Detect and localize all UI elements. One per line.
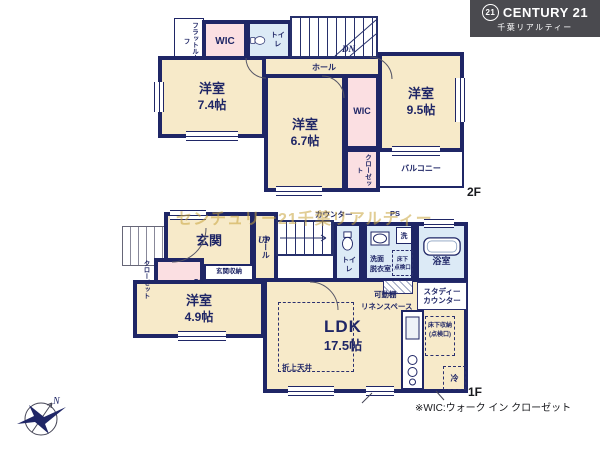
window (366, 386, 394, 396)
toilet-icon (250, 35, 266, 46)
f2-wic-mid: WIC (344, 74, 380, 150)
stairs-up-label: UP (258, 235, 270, 245)
floor-1-label: 1F (468, 385, 482, 399)
toilet-label: トイレ (339, 256, 359, 274)
floor-plan-page: 21 CENTURY 21 千葉リアルティー フラットルーフ WIC トイレ D… (0, 0, 600, 450)
f1-toilet: トイレ (333, 222, 363, 282)
f2-bedroom-6-7: 洋室 6.7帖 (264, 74, 346, 192)
hatch-label-2: 点検口 (394, 263, 411, 271)
entrance-label: 玄関 (196, 233, 222, 250)
washroom-label-1: 洗面 (370, 255, 384, 264)
window (186, 131, 238, 141)
linen-space-label: リネンスペース (361, 301, 412, 312)
study-counter: スタディー カウンター (417, 282, 467, 310)
century21-seal-icon: 21 (482, 4, 499, 21)
entrance-storage-label: 玄関収納 (216, 268, 242, 276)
stairs-down-label: DN (342, 44, 355, 54)
room-size: 4.9帖 (185, 310, 214, 326)
window (178, 331, 226, 341)
window (455, 78, 465, 122)
f1-bedroom-4-9: 洋室 4.9帖 (133, 280, 265, 338)
window (276, 186, 322, 196)
study-counter-label-2: カウンター (423, 296, 461, 305)
compass-north-icon: N (14, 392, 68, 446)
underfloor-hatch: 床下 点検口 (392, 250, 413, 276)
storage-label-1: 床下収納 (428, 320, 452, 329)
room-name: 洋室 (408, 86, 434, 103)
room-size: 7.4帖 (198, 98, 227, 114)
logo-brand-row: 21 CENTURY 21 (482, 4, 588, 21)
f2-closet: クローゼット (344, 148, 380, 192)
washroom-label-2: 脱衣室 (370, 265, 391, 274)
storage-label-2: (点検口) (429, 329, 451, 338)
window (154, 82, 164, 112)
window (288, 386, 334, 396)
wic-footnote: ※WIC:ウォーク イン クローゼット (415, 399, 571, 414)
kitchen-unit (401, 310, 424, 390)
company-name: 千葉リアルティー (497, 22, 572, 33)
bath-label: 浴室 (432, 256, 450, 268)
coffered-ceiling-label: 折上天井 (282, 362, 312, 373)
window (392, 146, 440, 156)
floor-2-label: 2F (467, 185, 481, 199)
f2-stairs (290, 16, 378, 58)
north-label: N (52, 396, 61, 407)
kitchen-sink-stove-icon (403, 312, 422, 388)
toilet-label: トイレ (268, 31, 288, 49)
fridge-label: 冷 (451, 373, 459, 384)
f1-bathroom: 浴室 (415, 222, 468, 282)
brand-name: CENTURY 21 (503, 5, 588, 20)
toilet-icon (341, 231, 354, 251)
underfloor-storage: 床下収納 (点検口) (425, 316, 455, 356)
century21-logo: 21 CENTURY 21 千葉リアルティー (470, 0, 600, 37)
washer-label: 洗 (401, 231, 408, 241)
entrance-storage: 玄関収納 (204, 264, 254, 281)
room-name: 洋室 (186, 293, 212, 310)
f2-bedroom-9-5: 洋室 9.5帖 (378, 52, 464, 152)
movable-shelf-label: 可動棚 (374, 289, 397, 300)
room-name: 洋室 (292, 117, 318, 134)
room-size: 6.7帖 (291, 134, 320, 150)
study-counter-label-1: スタディー (424, 287, 461, 296)
refrigerator-space: 冷 (443, 366, 466, 390)
closet-label: クローゼット (354, 152, 371, 188)
watermark: センチュリー21千葉リアルティー (176, 205, 433, 229)
f2-bedroom-7-4: 洋室 7.4帖 (158, 56, 266, 138)
wic-label: WIC (353, 106, 371, 118)
hatch-label-1: 床下 (397, 255, 408, 263)
washing-machine: 洗 (396, 227, 412, 244)
sink-icon (370, 231, 390, 246)
wic-label: WIC (215, 35, 234, 48)
room-name: 洋室 (199, 81, 225, 98)
bathtub-icon (422, 237, 462, 256)
f2-toilet: トイレ (246, 20, 292, 60)
closet-label: クローゼット (140, 260, 150, 314)
room-size: 9.5帖 (407, 103, 436, 119)
duct-space-label: DS (194, 279, 204, 286)
balcony-label: バルコニー (401, 164, 441, 174)
hall-label: ホール (312, 63, 336, 73)
